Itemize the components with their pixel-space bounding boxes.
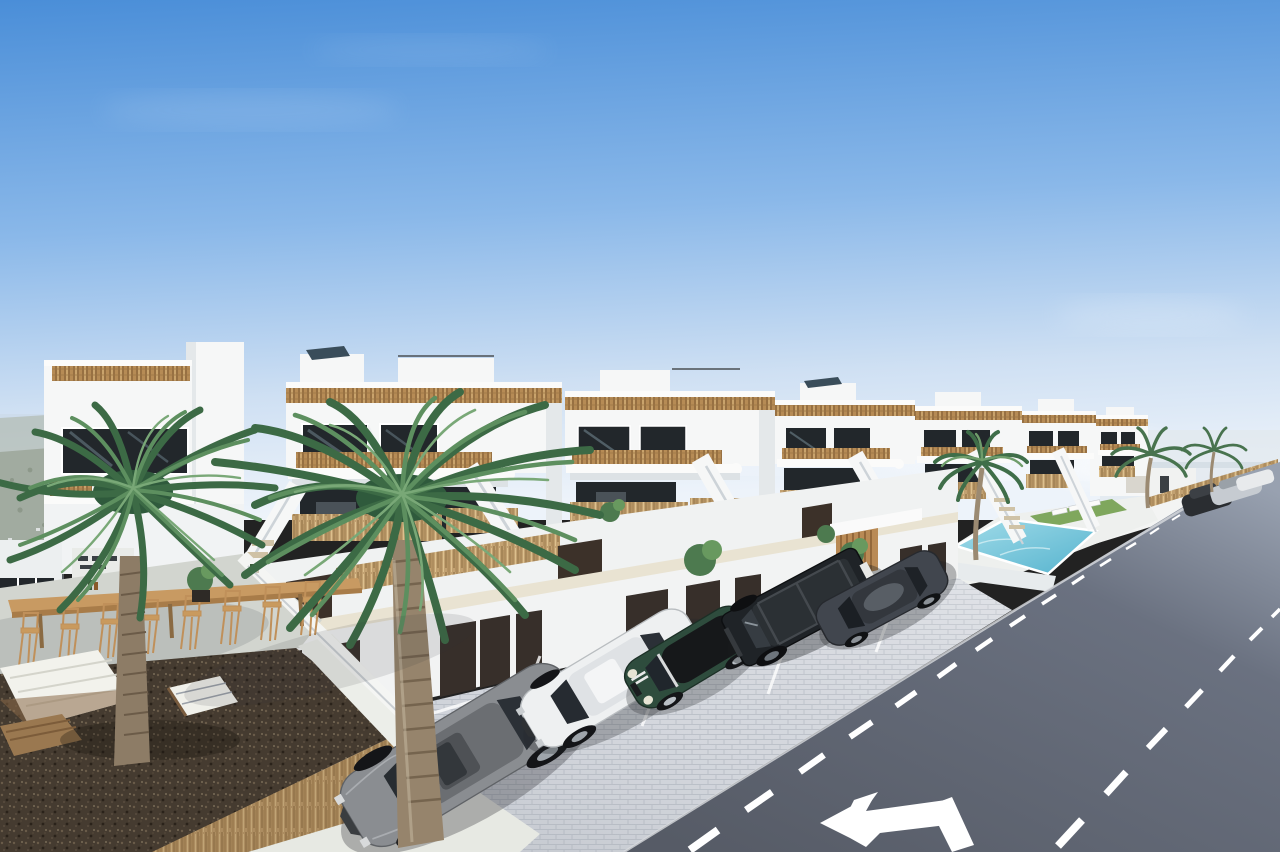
render-image: [0, 0, 1280, 852]
garage-door: [480, 615, 510, 688]
